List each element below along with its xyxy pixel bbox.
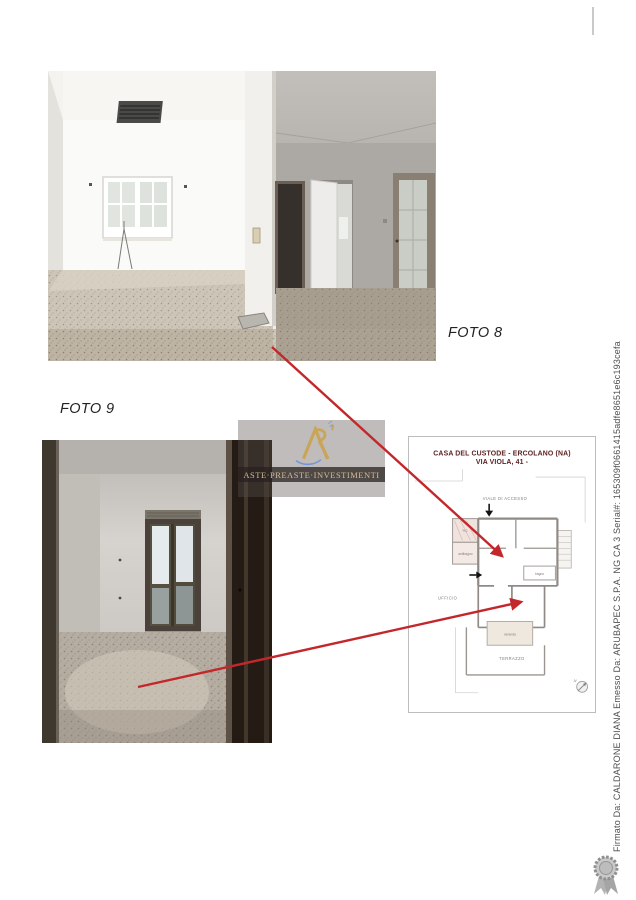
room-label-wc: w.c. — [463, 528, 469, 532]
entrance-arrow-top-icon — [485, 504, 493, 517]
signature-rosette-icon — [586, 852, 626, 896]
stairs — [557, 530, 571, 568]
watermark-overlay: ASTE·PREASTE·INVESTIMENTI — [238, 420, 385, 497]
document-page: FOTO 8 FOTO 9 — [0, 0, 636, 900]
room-label-ufficio: UFFICIO — [438, 596, 458, 601]
window — [89, 177, 187, 241]
floorplan-panel: CASA DEL CUSTODE - ERCOLANO (NA) VIA VIO… — [408, 436, 596, 713]
floorplan-title-line1: CASA DEL CUSTODE - ERCOLANO (NA) — [433, 450, 570, 457]
photo-foto8-art — [48, 71, 436, 361]
room-label-terrazzo: TERRAZZO — [499, 656, 525, 661]
signature-text-vertical: Firmato Da: CALDARONE DIANA Emesso Da: A… — [612, 341, 622, 852]
balcony-door — [145, 510, 201, 632]
room-antibagno: antibagno — [453, 542, 479, 564]
room-label-antibagno: antibagno — [458, 552, 472, 556]
watermark-strip: ASTE·PREASTE·INVESTIMENTI — [238, 467, 385, 482]
ac-grille — [117, 101, 163, 123]
brand-monogram-icon — [287, 420, 343, 468]
trim-mark — [592, 7, 594, 35]
floorplan-drawing: CASA DEL CUSTODE - ERCOLANO (NA) VIA VIO… — [409, 437, 595, 712]
label-foto9: FOTO 9 — [60, 401, 115, 417]
compass-n-label: N — [574, 678, 577, 683]
compass-north-icon: N — [574, 678, 588, 692]
dark-doorway — [275, 181, 305, 294]
label-foto8: FOTO 8 — [448, 325, 503, 341]
room-wc: w.c. — [453, 519, 479, 543]
room-label-veranda: veranda — [504, 632, 516, 636]
intercom — [253, 228, 260, 243]
photo-foto8 — [48, 71, 436, 361]
brand-text: ASTE·PREASTE·INVESTIMENTI — [243, 470, 379, 480]
room-label-viale-di-accesso: VIALE DI ACCESSO — [483, 496, 528, 501]
room-veranda: veranda — [487, 621, 533, 645]
room-bagno: bagno — [524, 566, 556, 580]
room-label-bagno: bagno — [535, 572, 544, 576]
floorplan-title-line2: VIA VIOLA, 41 - — [476, 459, 529, 466]
open-door — [311, 180, 353, 306]
entrance-arrow-side-icon — [469, 572, 482, 579]
